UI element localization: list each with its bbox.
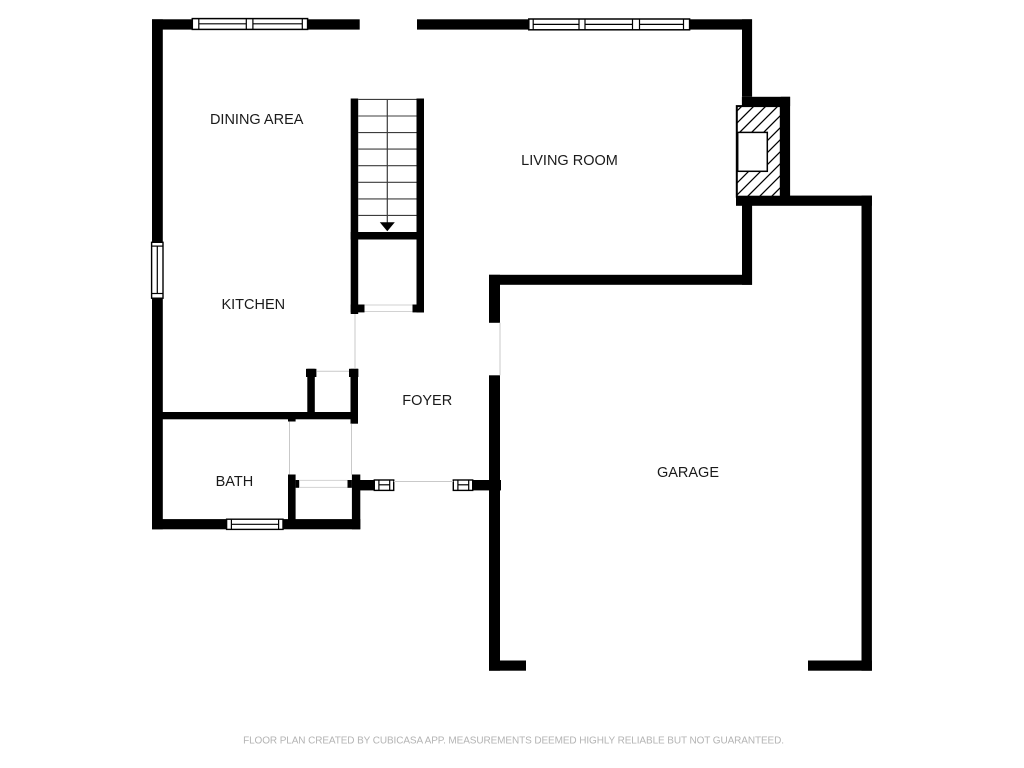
svg-text:FLOOR PLAN CREATED BY CUBICASA: FLOOR PLAN CREATED BY CUBICASA APP. MEAS… (243, 736, 784, 747)
svg-text:BATH: BATH (216, 474, 254, 490)
svg-text:KITCHEN: KITCHEN (221, 297, 285, 313)
svg-text:DINING AREA: DINING AREA (210, 112, 304, 128)
svg-text:GARAGE: GARAGE (657, 465, 719, 481)
svg-text:FOYER: FOYER (402, 393, 452, 409)
svg-text:LIVING ROOM: LIVING ROOM (521, 153, 618, 169)
